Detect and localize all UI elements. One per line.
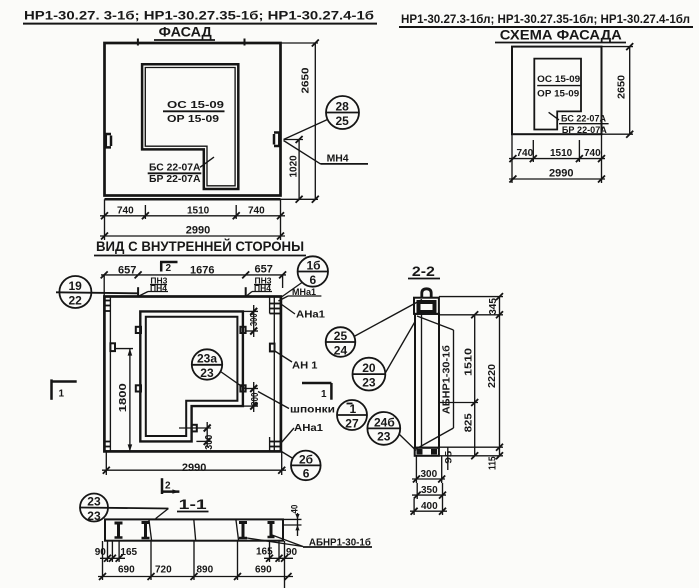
svg-text:25: 25	[336, 114, 350, 128]
svg-text:300: 300	[421, 469, 438, 480]
svg-text:ОС 15-09: ОС 15-09	[167, 100, 225, 111]
svg-text:1510: 1510	[550, 148, 573, 159]
svg-text:НР1-30.27. 3-1б; НР1-30.27.35: НР1-30.27. 3-1б; НР1-30.27.35-1б; НР1-30…	[24, 9, 374, 23]
svg-text:МН4: МН4	[327, 154, 349, 165]
svg-text:ОР 15-09: ОР 15-09	[167, 114, 220, 125]
svg-text:40: 40	[290, 505, 300, 514]
svg-text:90: 90	[95, 547, 107, 558]
svg-text:ОС 15-09: ОС 15-09	[537, 74, 580, 84]
svg-text:23: 23	[362, 375, 376, 389]
svg-text:АБНР1-30-1б: АБНР1-30-1б	[309, 537, 371, 549]
svg-text:23: 23	[87, 495, 101, 509]
svg-text:24б: 24б	[374, 415, 395, 429]
svg-text:24: 24	[334, 343, 348, 357]
svg-text:АН 1: АН 1	[292, 361, 318, 372]
svg-text:90: 90	[286, 547, 298, 558]
svg-text:23а: 23а	[197, 352, 217, 366]
svg-text:23: 23	[200, 366, 214, 380]
svg-text:1: 1	[321, 389, 327, 400]
svg-text:300: 300	[250, 392, 261, 406]
svg-text:НР1-30.27.3-1бл; НР1-30.27.35-: НР1-30.27.3-1бл; НР1-30.27.35-1бл; НР1-3…	[401, 12, 690, 26]
svg-text:2-2: 2-2	[412, 264, 435, 279]
svg-text:2: 2	[165, 481, 171, 492]
svg-text:740: 740	[584, 148, 601, 159]
svg-text:ФАСАД: ФАСАД	[159, 24, 212, 39]
svg-text:27: 27	[345, 416, 359, 430]
svg-text:АБНР1-30-1б: АБНР1-30-1б	[441, 345, 453, 414]
svg-text:20: 20	[362, 361, 376, 375]
svg-text:1б: 1б	[307, 259, 321, 273]
svg-text:657: 657	[255, 264, 273, 276]
svg-text:1676: 1676	[190, 265, 214, 277]
svg-text:720: 720	[155, 565, 172, 576]
svg-text:МНа1: МНа1	[292, 287, 316, 297]
svg-text:АНа1: АНа1	[296, 310, 325, 321]
svg-text:СХЕМА ФАСАДА: СХЕМА ФАСАДА	[500, 28, 622, 43]
svg-text:2650: 2650	[617, 75, 628, 99]
svg-text:1020: 1020	[289, 155, 300, 178]
svg-text:890: 890	[197, 565, 214, 576]
svg-text:2220: 2220	[487, 364, 498, 388]
svg-text:шпонки: шпонки	[290, 404, 335, 415]
svg-text:БР 22-07А: БР 22-07А	[149, 174, 201, 185]
svg-text:28: 28	[336, 100, 350, 114]
svg-text:25: 25	[334, 329, 348, 343]
svg-text:740: 740	[117, 206, 134, 217]
svg-text:АНа1: АНа1	[294, 423, 323, 434]
svg-text:690: 690	[118, 565, 135, 576]
svg-text:6: 6	[303, 467, 310, 481]
svg-text:350: 350	[421, 485, 438, 496]
svg-text:23: 23	[377, 430, 391, 444]
svg-text:690: 690	[255, 565, 272, 576]
svg-text:23: 23	[87, 509, 101, 523]
svg-text:740: 740	[248, 206, 265, 217]
svg-text:825: 825	[463, 413, 474, 432]
svg-text:2: 2	[166, 263, 172, 274]
svg-text:19: 19	[69, 279, 83, 293]
svg-text:БС 22-07А: БС 22-07А	[149, 163, 201, 174]
svg-text:22: 22	[69, 293, 83, 307]
svg-text:1800: 1800	[118, 383, 129, 413]
svg-text:2650: 2650	[301, 67, 312, 94]
svg-text:345: 345	[488, 298, 499, 315]
svg-text:1: 1	[59, 389, 65, 400]
svg-text:2990: 2990	[549, 168, 573, 180]
svg-text:165: 165	[120, 547, 137, 558]
svg-text:1510: 1510	[463, 347, 474, 376]
svg-text:ВИД С ВНУТРЕННЕЙ СТОРОНЫ: ВИД С ВНУТРЕННЕЙ СТОРОНЫ	[96, 239, 304, 254]
svg-text:2990: 2990	[186, 225, 210, 237]
svg-text:1-1: 1-1	[179, 497, 208, 512]
svg-text:2990: 2990	[182, 462, 206, 474]
svg-text:БС 22-07А: БС 22-07А	[561, 114, 606, 124]
svg-text:ОР 15-09: ОР 15-09	[537, 89, 579, 99]
svg-text:2б: 2б	[299, 452, 313, 466]
svg-text:БР 22-07А: БР 22-07А	[562, 125, 607, 135]
svg-text:657: 657	[118, 265, 136, 277]
svg-text:165: 165	[256, 547, 273, 558]
svg-text:400: 400	[421, 501, 438, 512]
svg-text:115: 115	[488, 456, 499, 470]
svg-text:1510: 1510	[187, 206, 210, 217]
svg-text:300: 300	[204, 434, 215, 449]
svg-text:300: 300	[249, 313, 260, 326]
svg-text:6: 6	[310, 273, 317, 287]
svg-text:95: 95	[444, 451, 454, 464]
svg-text:740: 740	[517, 148, 534, 159]
